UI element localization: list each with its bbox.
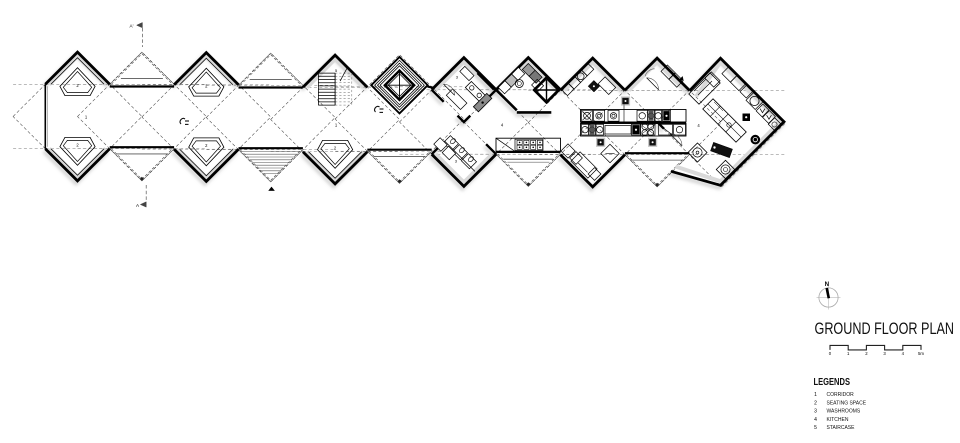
svg-text:3: 3 bbox=[814, 409, 817, 415]
svg-text:5m: 5m bbox=[918, 351, 924, 356]
svg-text:GROUND FLOOR PLAN: GROUND FLOOR PLAN bbox=[815, 319, 955, 338]
svg-text:4: 4 bbox=[814, 417, 817, 423]
svg-text:LEGENDS: LEGENDS bbox=[814, 376, 851, 388]
svg-text:CORRIDOR: CORRIDOR bbox=[827, 392, 855, 398]
svg-text:5: 5 bbox=[814, 425, 817, 431]
svg-text:KITCHEN: KITCHEN bbox=[827, 417, 849, 423]
svg-text:STAIRCASE: STAIRCASE bbox=[827, 425, 856, 431]
svg-text:1: 1 bbox=[814, 392, 817, 398]
svg-text:N: N bbox=[825, 281, 830, 288]
svg-text:2: 2 bbox=[814, 400, 817, 406]
svg-text:WASHROOMS: WASHROOMS bbox=[827, 409, 861, 415]
svg-text:A': A' bbox=[130, 24, 134, 29]
svg-text:SEATING SPACE: SEATING SPACE bbox=[827, 400, 867, 406]
